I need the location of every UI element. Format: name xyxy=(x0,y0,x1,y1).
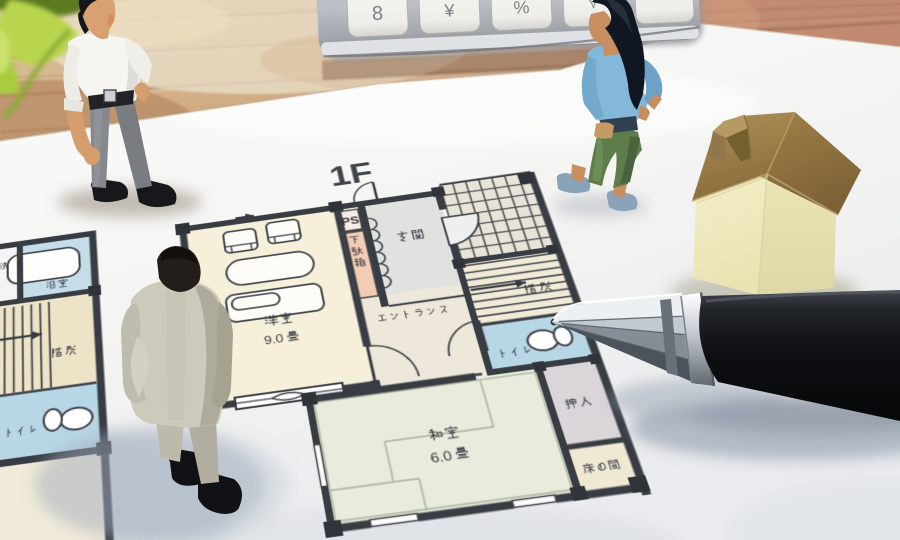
svg-text:8: 8 xyxy=(372,3,384,25)
svg-text:¥: ¥ xyxy=(443,0,456,21)
svg-text:%: % xyxy=(513,0,530,18)
